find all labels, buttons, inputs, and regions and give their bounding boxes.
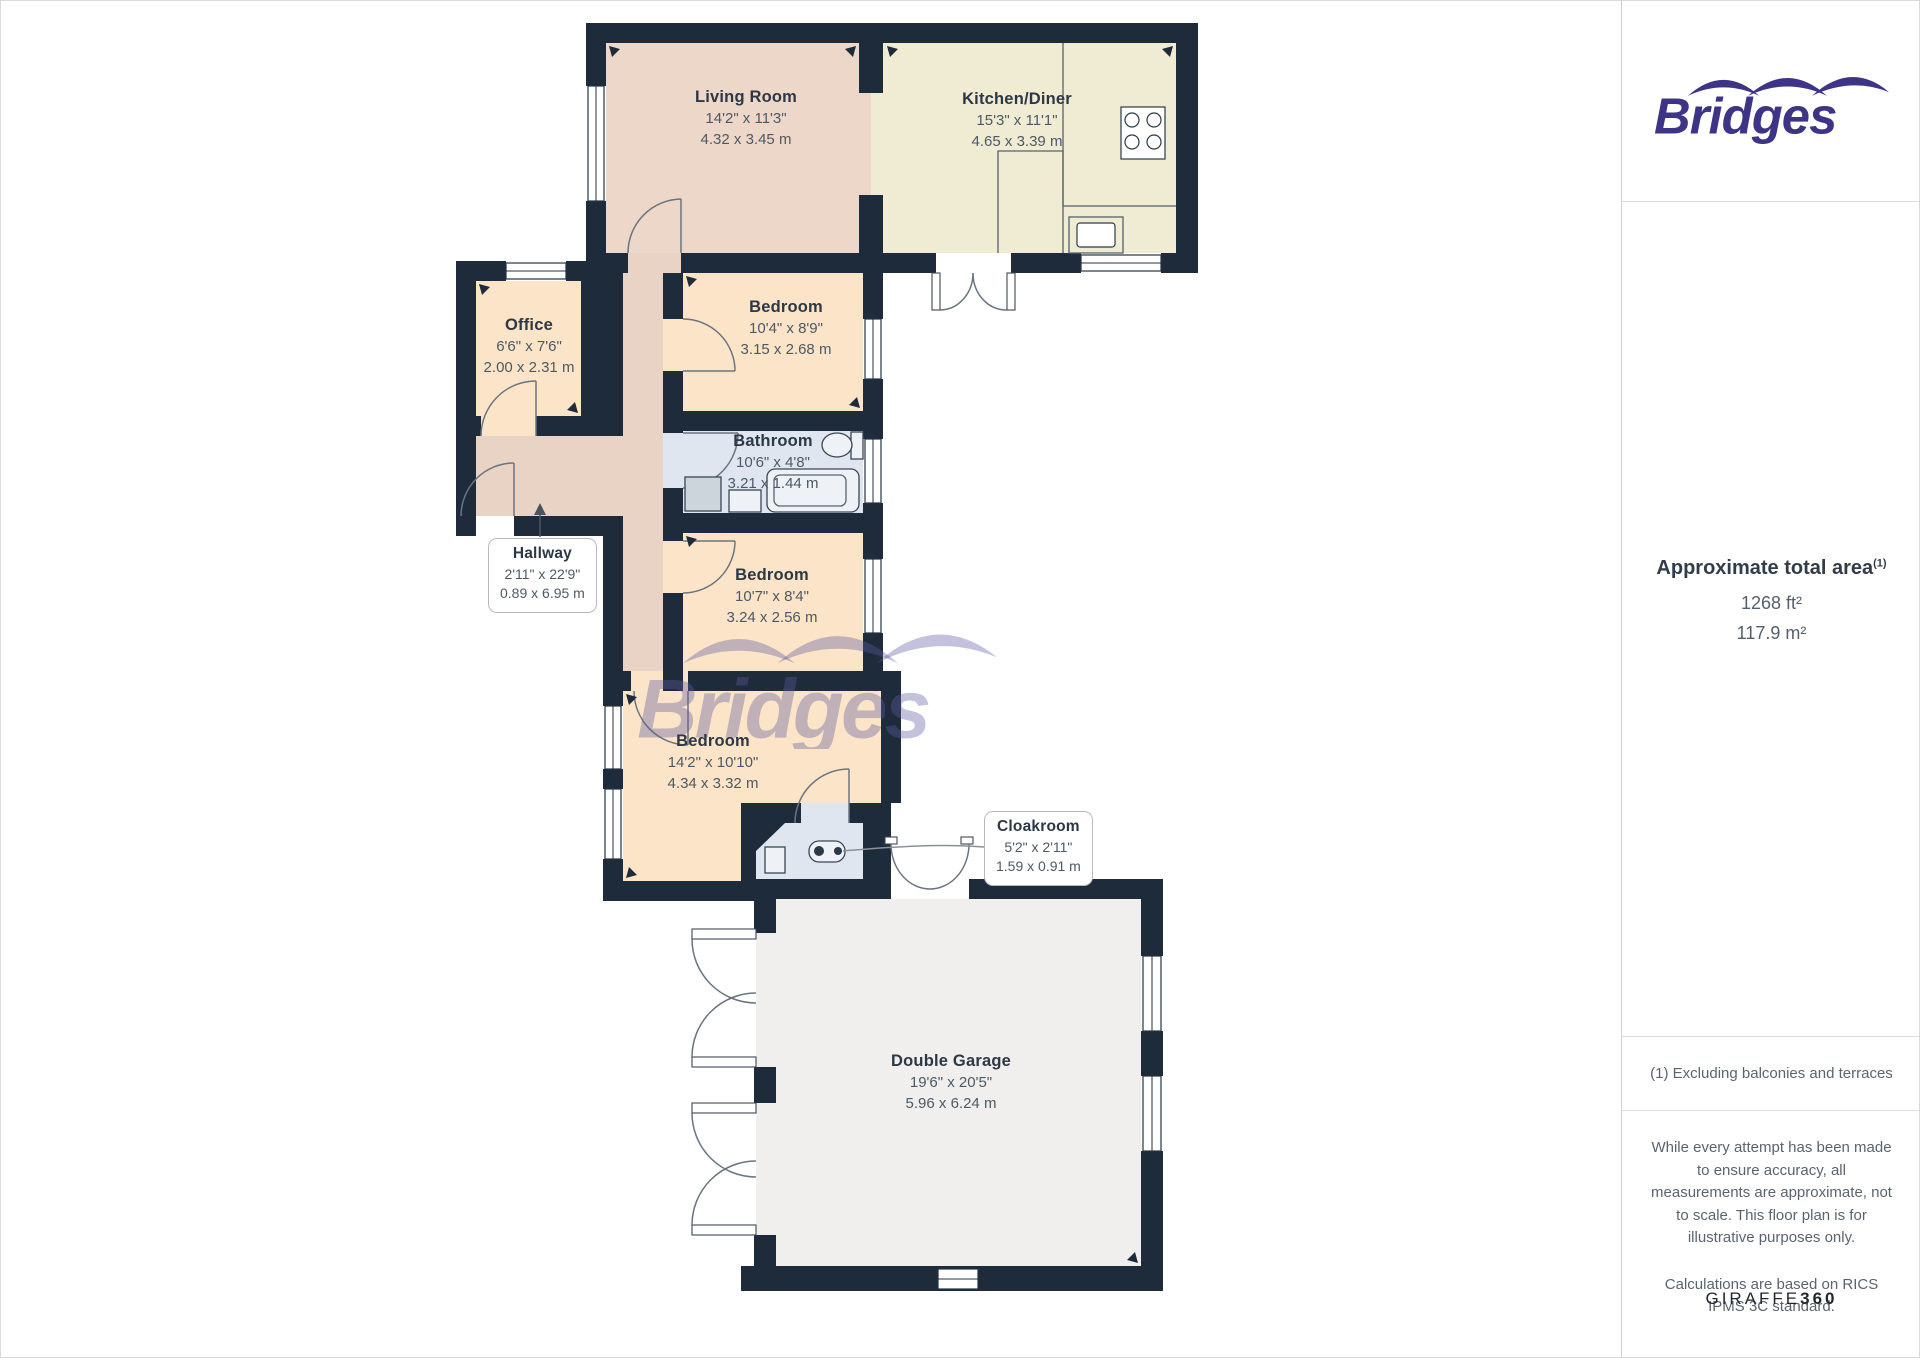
info-sidebar: Bridges Approximate total area(1) 1268 f…: [1621, 1, 1920, 1358]
room-name: Living Room: [695, 88, 797, 107]
room-name: Cloakroom: [996, 818, 1081, 836]
room-dims-imperial: 10'4" x 8'9": [741, 319, 832, 340]
room-label-double-garage: Double Garage 19'6" x 20'5" 5.96 x 6.24 …: [891, 1052, 1011, 1114]
room-dims-imperial: 5'2" x 2'11": [996, 838, 1081, 857]
total-area-imperial: 1268 ft²: [1622, 593, 1920, 614]
room-name: Bedroom: [741, 298, 832, 317]
room-dims-imperial: 2'11" x 22'9": [500, 565, 585, 584]
giraffe360-regular: GIRAFFE: [1705, 1289, 1800, 1308]
room-dims-imperial: 19'6" x 20'5": [891, 1073, 1011, 1094]
room-name: Bedroom: [668, 732, 759, 751]
room-name: Double Garage: [891, 1052, 1011, 1071]
giraffe360-logo: GIRAFFE360: [1622, 1289, 1920, 1309]
room-name: Bathroom: [728, 432, 819, 451]
sink-icon: [1077, 223, 1115, 247]
footnote-text: (1) Excluding balconies and terraces: [1650, 1065, 1893, 1082]
room-label-living-room: Living Room 14'2" x 11'3" 4.32 x 3.45 m: [695, 88, 797, 150]
room-dims-imperial: 14'2" x 10'10": [668, 753, 759, 774]
total-area-footnote-ref: (1): [1873, 557, 1886, 569]
room-label-bedroom-2: Bedroom 10'7" x 8'4" 3.24 x 2.56 m: [727, 566, 818, 628]
toilet-icon: [822, 433, 852, 457]
room-dims-metric: 3.15 x 2.68 m: [741, 340, 832, 361]
toilet-tank-icon: [851, 432, 863, 459]
disclaimer-paragraph: While every attempt has been made to ens…: [1646, 1137, 1897, 1250]
room-label-kitchen-diner: Kitchen/Diner 15'3" x 11'1" 4.65 x 3.39 …: [962, 90, 1072, 152]
room-dims-metric: 4.32 x 3.45 m: [695, 130, 797, 151]
room-label-bedroom-1: Bedroom 10'4" x 8'9" 3.15 x 2.68 m: [741, 298, 832, 360]
room-dims-imperial: 6'6" x 7'6": [484, 337, 575, 358]
room-name: Bedroom: [727, 566, 818, 585]
disclaimer-section: While every attempt has been made to ens…: [1622, 1111, 1920, 1319]
room-dims-metric: 3.24 x 2.56 m: [727, 608, 818, 629]
brand-logo-box: Bridges: [1622, 1, 1920, 202]
room-name: Hallway: [500, 545, 585, 563]
brand-logo-text: Bridges: [1654, 87, 1836, 144]
room-label-bedroom-3: Bedroom 14'2" x 10'10" 4.34 x 3.32 m: [668, 732, 759, 794]
total-area-metric: 117.9 m²: [1622, 623, 1920, 644]
room-dims-metric: 4.65 x 3.39 m: [962, 132, 1072, 153]
shower-icon: [685, 477, 721, 511]
footnote-section: (1) Excluding balconies and terraces: [1622, 1036, 1920, 1111]
bridges-logo: Bridges: [1654, 58, 1889, 145]
floor-plan: [1, 1, 1621, 1358]
total-area-section: Approximate total area(1) 1268 ft² 117.9…: [1622, 557, 1920, 644]
room-dims-metric: 0.89 x 6.95 m: [500, 584, 585, 603]
callout-cloakroom: Cloakroom 5'2" x 2'11" 1.59 x 0.91 m: [984, 811, 1093, 886]
sink-icon: [765, 847, 785, 873]
room-name: Kitchen/Diner: [962, 90, 1072, 109]
room-name: Office: [484, 316, 575, 335]
room-dims-imperial: 14'2" x 11'3": [695, 109, 797, 130]
room-dims-imperial: 10'7" x 8'4": [727, 587, 818, 608]
callout-hallway: Hallway 2'11" x 22'9" 0.89 x 6.95 m: [488, 538, 597, 613]
total-area-title-text: Approximate total area: [1656, 557, 1873, 579]
floorplan-page: Bridges Living Room 14'2" x 11'3" 4.32 x…: [0, 0, 1920, 1358]
room-dims-metric: 3.21 x 1.44 m: [728, 474, 819, 495]
room-dims-metric: 2.00 x 2.31 m: [484, 358, 575, 379]
room-dims-metric: 1.59 x 0.91 m: [996, 857, 1081, 876]
total-area-title: Approximate total area(1): [1622, 557, 1920, 580]
room-dims-metric: 4.34 x 3.32 m: [668, 774, 759, 795]
room-fills-layer: [476, 43, 1176, 1266]
room-dims-metric: 5.96 x 6.24 m: [891, 1094, 1011, 1115]
room-label-office: Office 6'6" x 7'6" 2.00 x 2.31 m: [484, 316, 575, 378]
room-label-bathroom: Bathroom 10'6" x 4'8" 3.21 x 1.44 m: [728, 432, 819, 494]
room-dims-imperial: 15'3" x 11'1": [962, 111, 1072, 132]
giraffe360-bold: 360: [1800, 1289, 1837, 1308]
room-dims-imperial: 10'6" x 4'8": [728, 453, 819, 474]
